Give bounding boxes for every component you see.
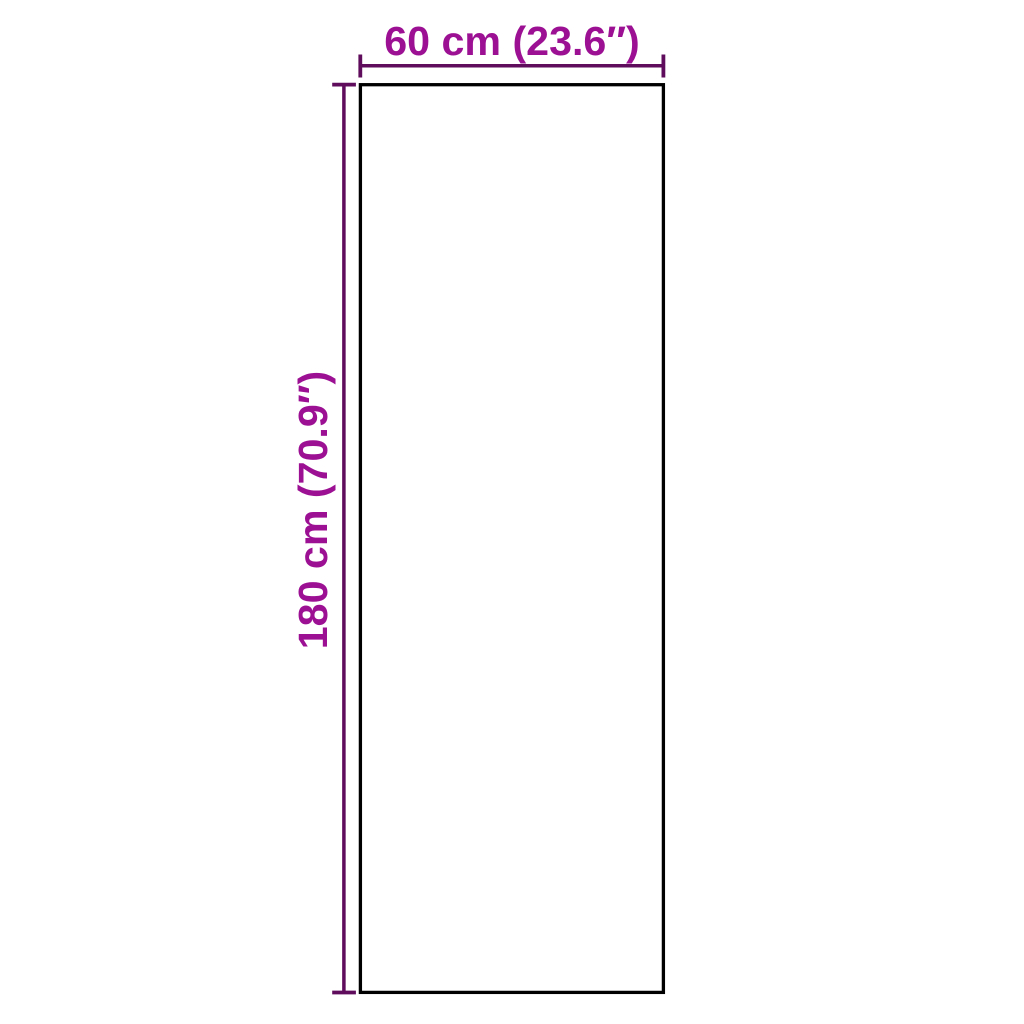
svg-text:60 cm (23.6″): 60 cm (23.6″) xyxy=(384,18,640,64)
svg-text:180 cm (70.9″): 180 cm (70.9″) xyxy=(290,371,336,649)
